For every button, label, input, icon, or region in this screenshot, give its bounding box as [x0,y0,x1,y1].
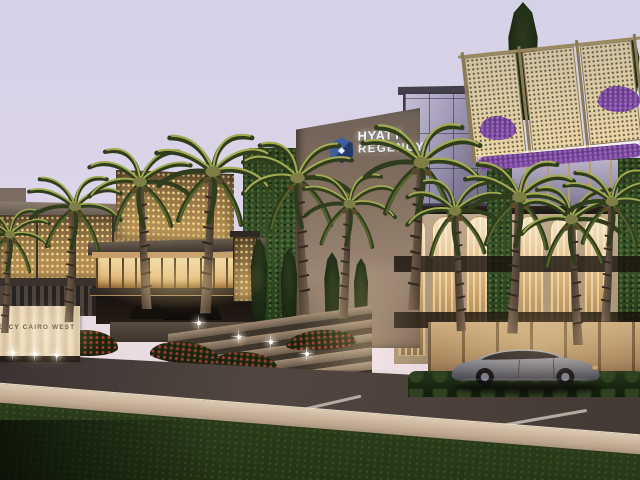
bougainvillea [598,86,640,112]
step-light [234,332,243,341]
uplight [30,349,39,358]
lattice-panel [522,46,584,151]
lawn-shadow [0,420,300,480]
step-light [266,337,275,346]
palm-tree [557,158,640,333]
uplight [8,348,17,357]
monument-sign-text: REGENCY CAIRO WEST [0,324,75,331]
parked-sedan [448,332,606,392]
step-light [194,318,203,327]
hotel-exterior-rendering: HYATT REGENCY [0,0,640,480]
step-light [302,349,311,358]
uplight [52,350,61,359]
